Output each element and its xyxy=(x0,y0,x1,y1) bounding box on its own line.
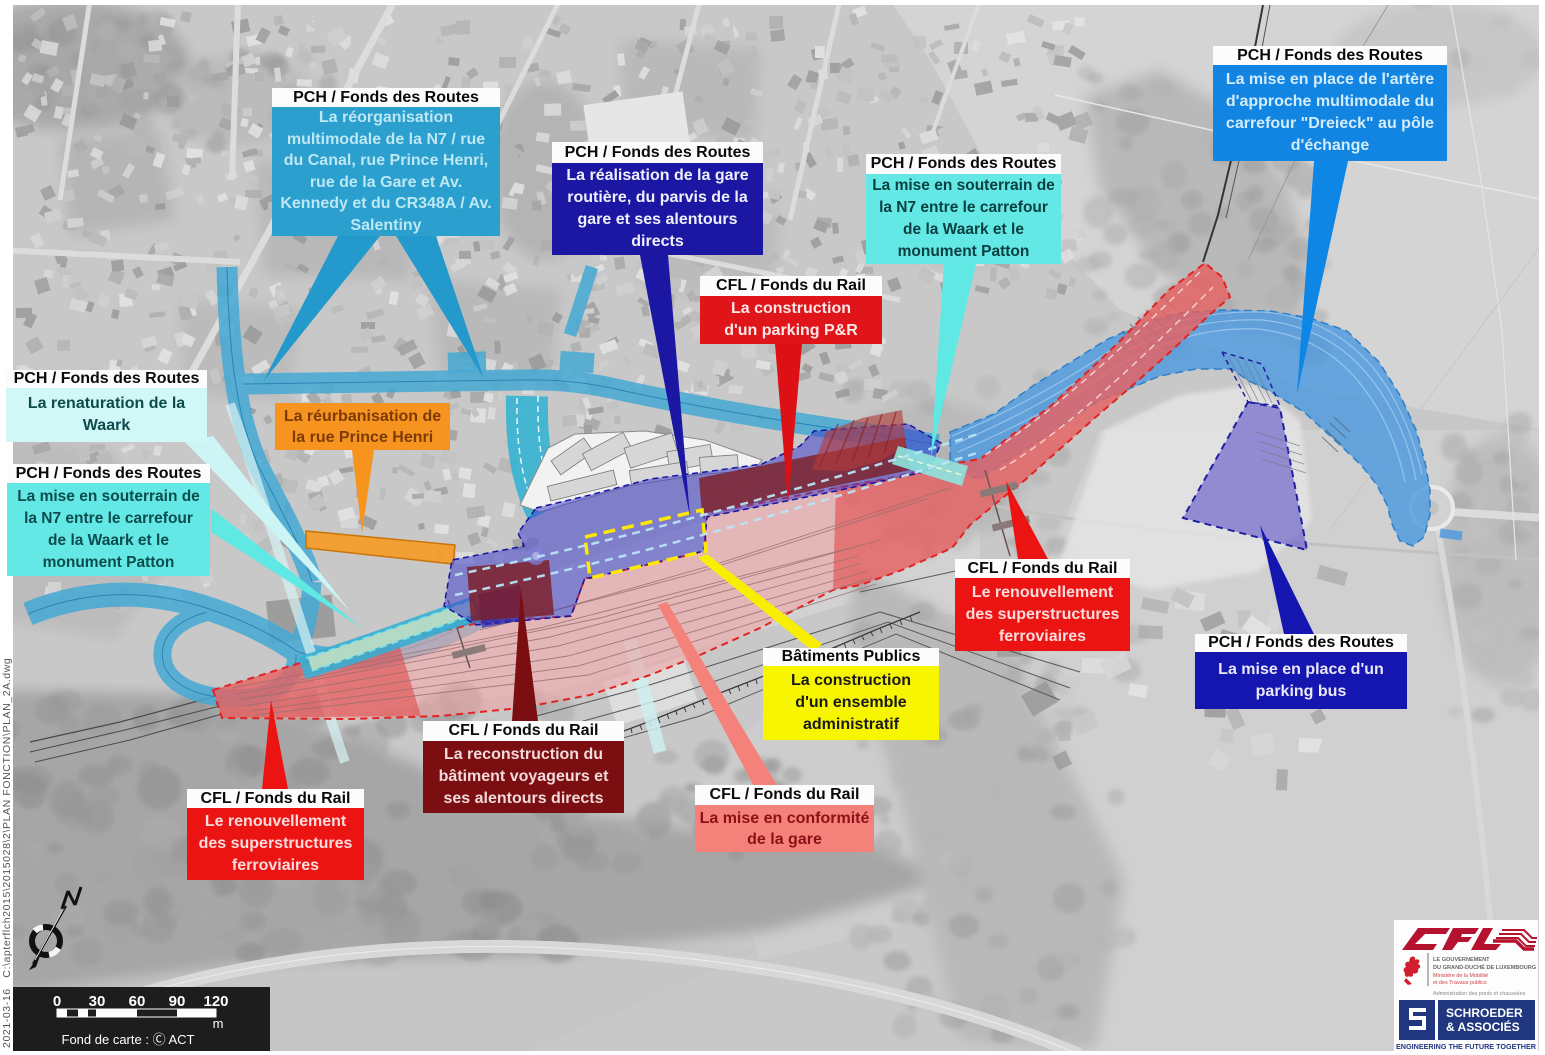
svg-text:& ASSOCIÉS: & ASSOCIÉS xyxy=(1446,1019,1520,1034)
svg-text:90: 90 xyxy=(169,993,186,1010)
svg-text:m: m xyxy=(213,1016,224,1031)
svg-text:Administration des ponts et ch: Administration des ponts et chaussées xyxy=(1433,991,1526,997)
svg-text:LE GOUVERNEMENT: LE GOUVERNEMENT xyxy=(1433,957,1490,963)
svg-text:Fond de carte : Ⓒ ACT: Fond de carte : Ⓒ ACT xyxy=(62,1032,195,1047)
svg-text:120: 120 xyxy=(203,993,228,1010)
svg-text:SCHROEDER: SCHROEDER xyxy=(1446,1006,1523,1020)
svg-text:2021-03-16 C:\apterflch2015\: 2021-03-16 C:\apterflch2015\2015028\2\PL… xyxy=(1,658,13,1048)
svg-text:DU GRAND-DUCHÉ DE LUXEMBOURG: DU GRAND-DUCHÉ DE LUXEMBOURG xyxy=(1433,963,1536,971)
svg-text:ENGINEERING THE FUTURE TOGETHE: ENGINEERING THE FUTURE TOGETHER xyxy=(1396,1042,1536,1051)
svg-text:60: 60 xyxy=(129,993,146,1010)
svg-text:30: 30 xyxy=(89,993,106,1010)
svg-text:0: 0 xyxy=(53,993,61,1010)
svg-text:Ministère de la Mobilité: Ministère de la Mobilité xyxy=(1433,973,1488,979)
svg-text:et des Travaux publics: et des Travaux publics xyxy=(1433,980,1487,986)
